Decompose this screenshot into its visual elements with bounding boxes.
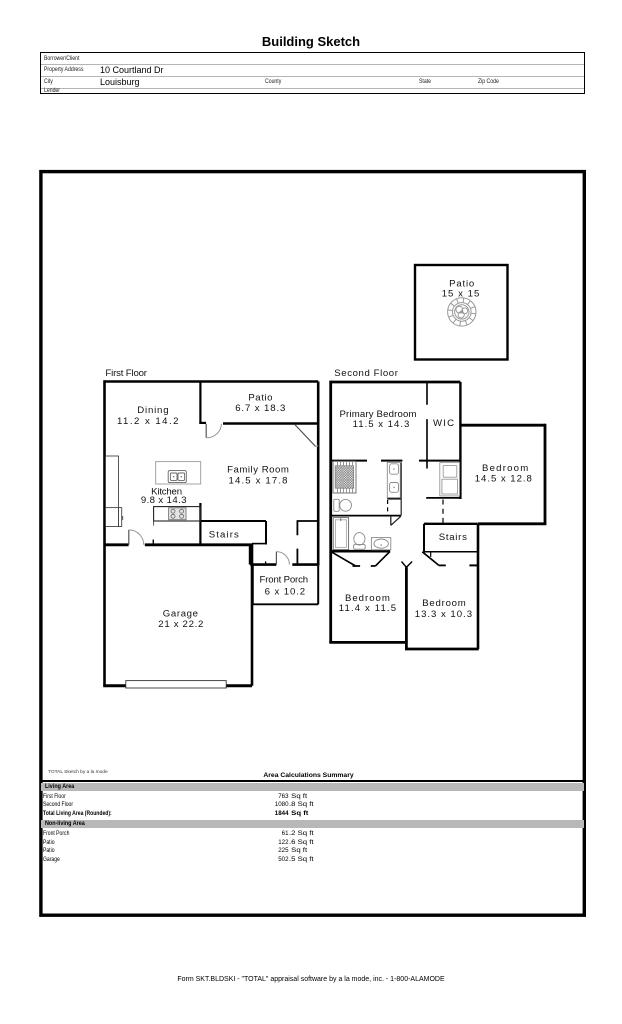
svg-text:Second Floor: Second Floor	[334, 368, 398, 379]
svg-text:Stairs: Stairs	[209, 530, 239, 541]
svg-text:15 x 15: 15 x 15	[442, 289, 480, 300]
svg-text:14.5 x 12.8: 14.5 x 12.8	[475, 474, 532, 485]
svg-text:21 x 22.2: 21 x 22.2	[158, 619, 203, 630]
svg-text:6 x 10.2: 6 x 10.2	[265, 586, 306, 597]
svg-text:Patio: Patio	[248, 392, 272, 403]
svg-text:Bedroom: Bedroom	[422, 598, 466, 609]
svg-text:6.7 x 18.3: 6.7 x 18.3	[235, 403, 285, 414]
svg-text:Dining: Dining	[137, 405, 168, 416]
svg-text:11.2 x 14.2: 11.2 x 14.2	[117, 416, 179, 427]
svg-text:Family Room: Family Room	[227, 464, 289, 475]
svg-text:First Floor: First Floor	[105, 368, 147, 379]
svg-text:11.4 x 11.5: 11.4 x 11.5	[339, 603, 396, 614]
svg-text:13.3 x 10.3: 13.3 x 10.3	[415, 609, 472, 620]
svg-text:Bedroom: Bedroom	[482, 463, 528, 474]
svg-text:9.8 x 14.3: 9.8 x 14.3	[141, 495, 187, 506]
svg-text:11.5 x 14.3: 11.5 x 14.3	[353, 419, 410, 430]
svg-text:Front Porch: Front Porch	[260, 574, 309, 585]
svg-text:Garage: Garage	[163, 608, 198, 619]
svg-text:14.5 x 17.8: 14.5 x 17.8	[229, 476, 288, 487]
svg-text:Stairs: Stairs	[439, 532, 467, 543]
svg-text:WIC: WIC	[433, 418, 454, 429]
